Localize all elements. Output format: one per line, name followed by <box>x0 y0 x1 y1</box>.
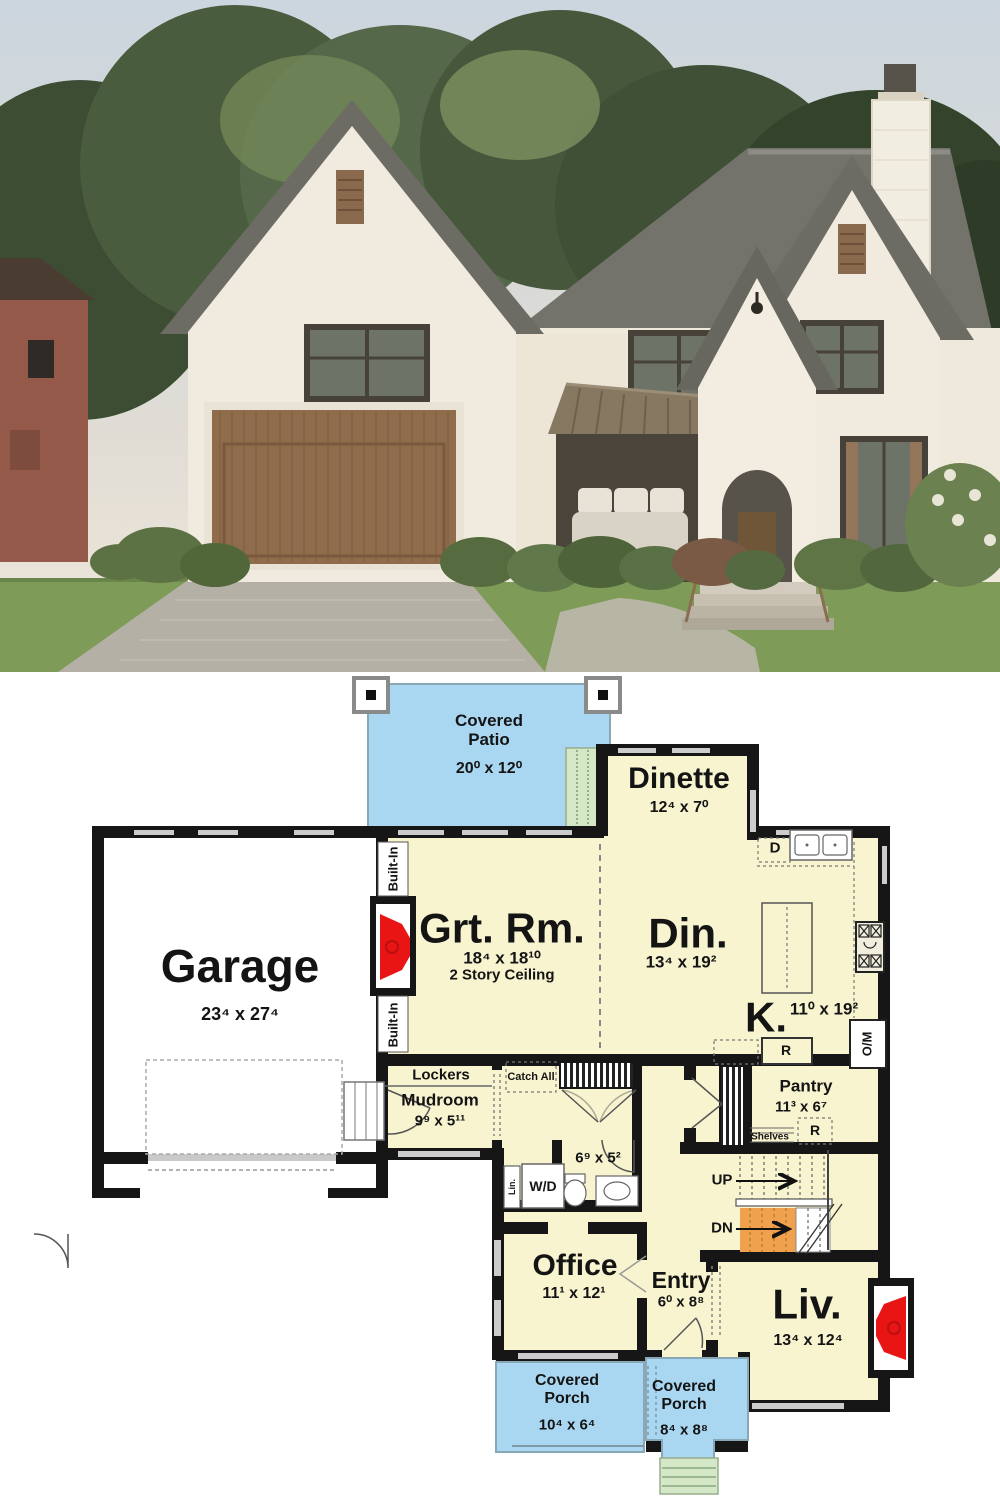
pantry-label: Pantry <box>780 1076 833 1095</box>
patio-steps <box>566 748 600 832</box>
great-room-note: 2 Story Ceiling <box>449 968 554 985</box>
great-room-dims: 18⁴ x 18¹⁰ <box>463 948 541 967</box>
dinette-dims: 12⁴ x 7⁰ <box>650 799 709 817</box>
stairs-dn-label: DN <box>711 1221 733 1238</box>
garage-label: Garage <box>161 941 320 993</box>
floor-plan <box>0 672 1000 1500</box>
living-dims: 13⁴ x 12⁴ <box>773 1332 842 1350</box>
living-fireplace <box>868 1278 914 1378</box>
covered-porch-right-dims: 8⁴ x 8⁸ <box>660 1423 708 1440</box>
stairs-up-label: UP <box>712 1173 733 1190</box>
washer-dryer-label: W/D <box>529 1179 556 1195</box>
office-dims: 11¹ x 12¹ <box>542 1285 605 1303</box>
garage-door <box>204 402 464 570</box>
coat-closet-hatch <box>720 1066 744 1146</box>
porch-steps <box>660 1458 718 1494</box>
dining-dims: 13⁴ x 19² <box>646 952 717 971</box>
kitchen-sink <box>790 830 852 860</box>
bath-dims: 6⁹ x 5² <box>575 1151 620 1168</box>
oven-microwave-label: O/M <box>861 1032 876 1057</box>
great-room-label: Grt. Rm. <box>419 904 585 951</box>
neighbor-house <box>0 258 95 562</box>
dishwasher-label: D <box>770 841 781 858</box>
fridge-kitchen-label: R <box>781 1043 791 1059</box>
living-label: Liv. <box>772 1280 841 1327</box>
lockers-label: Lockers <box>412 1068 470 1085</box>
garage-dims: 23⁴ x 27⁴ <box>201 1004 279 1024</box>
shelves-label: Shelves <box>751 1131 789 1142</box>
left-gable-window <box>304 324 430 402</box>
covered-porch-left-dims: 10⁴ x 6⁴ <box>539 1418 596 1435</box>
hall-closet-hatch <box>560 1062 634 1088</box>
built-in-top-label: Built-In <box>387 847 402 892</box>
mudroom-dims: 9⁹ x 5¹¹ <box>415 1114 465 1131</box>
page: Covered Patio 20⁰ x 12⁰ Dinette 12⁴ x 7⁰… <box>0 0 1000 1500</box>
office-door <box>34 1234 68 1268</box>
dining-label: Din. <box>648 909 727 956</box>
range-cooktop <box>856 922 884 972</box>
dinette-label: Dinette <box>628 762 730 796</box>
garage-floor <box>98 832 380 1154</box>
kitchen-dims: 11⁰ x 19² <box>790 999 858 1018</box>
entry-label: Entry <box>652 1268 711 1294</box>
house-exterior-photo <box>0 0 1000 672</box>
left-gable-vent <box>336 170 364 224</box>
covered-patio-label: Covered Patio <box>443 711 535 749</box>
covered-porch-right-label: Covered Porch <box>642 1378 726 1414</box>
fridge-pantry-label: R <box>810 1123 820 1139</box>
built-in-bottom-label: Built-In <box>387 1003 402 1048</box>
covered-porch-left-label: Covered Porch <box>525 1372 609 1408</box>
mudroom-label: Mudroom <box>401 1090 478 1109</box>
kitchen-label: K. <box>745 993 787 1040</box>
office-label: Office <box>532 1249 617 1283</box>
pantry-dims: 11³ x 6⁷ <box>775 1100 827 1117</box>
right-gable-vent <box>838 224 866 274</box>
catch-all-label: Catch All <box>507 1071 554 1083</box>
entry-dims: 6⁰ x 8⁸ <box>658 1295 704 1312</box>
linen-label: Lin. <box>507 1179 517 1195</box>
covered-patio-dims: 20⁰ x 12⁰ <box>456 760 522 778</box>
